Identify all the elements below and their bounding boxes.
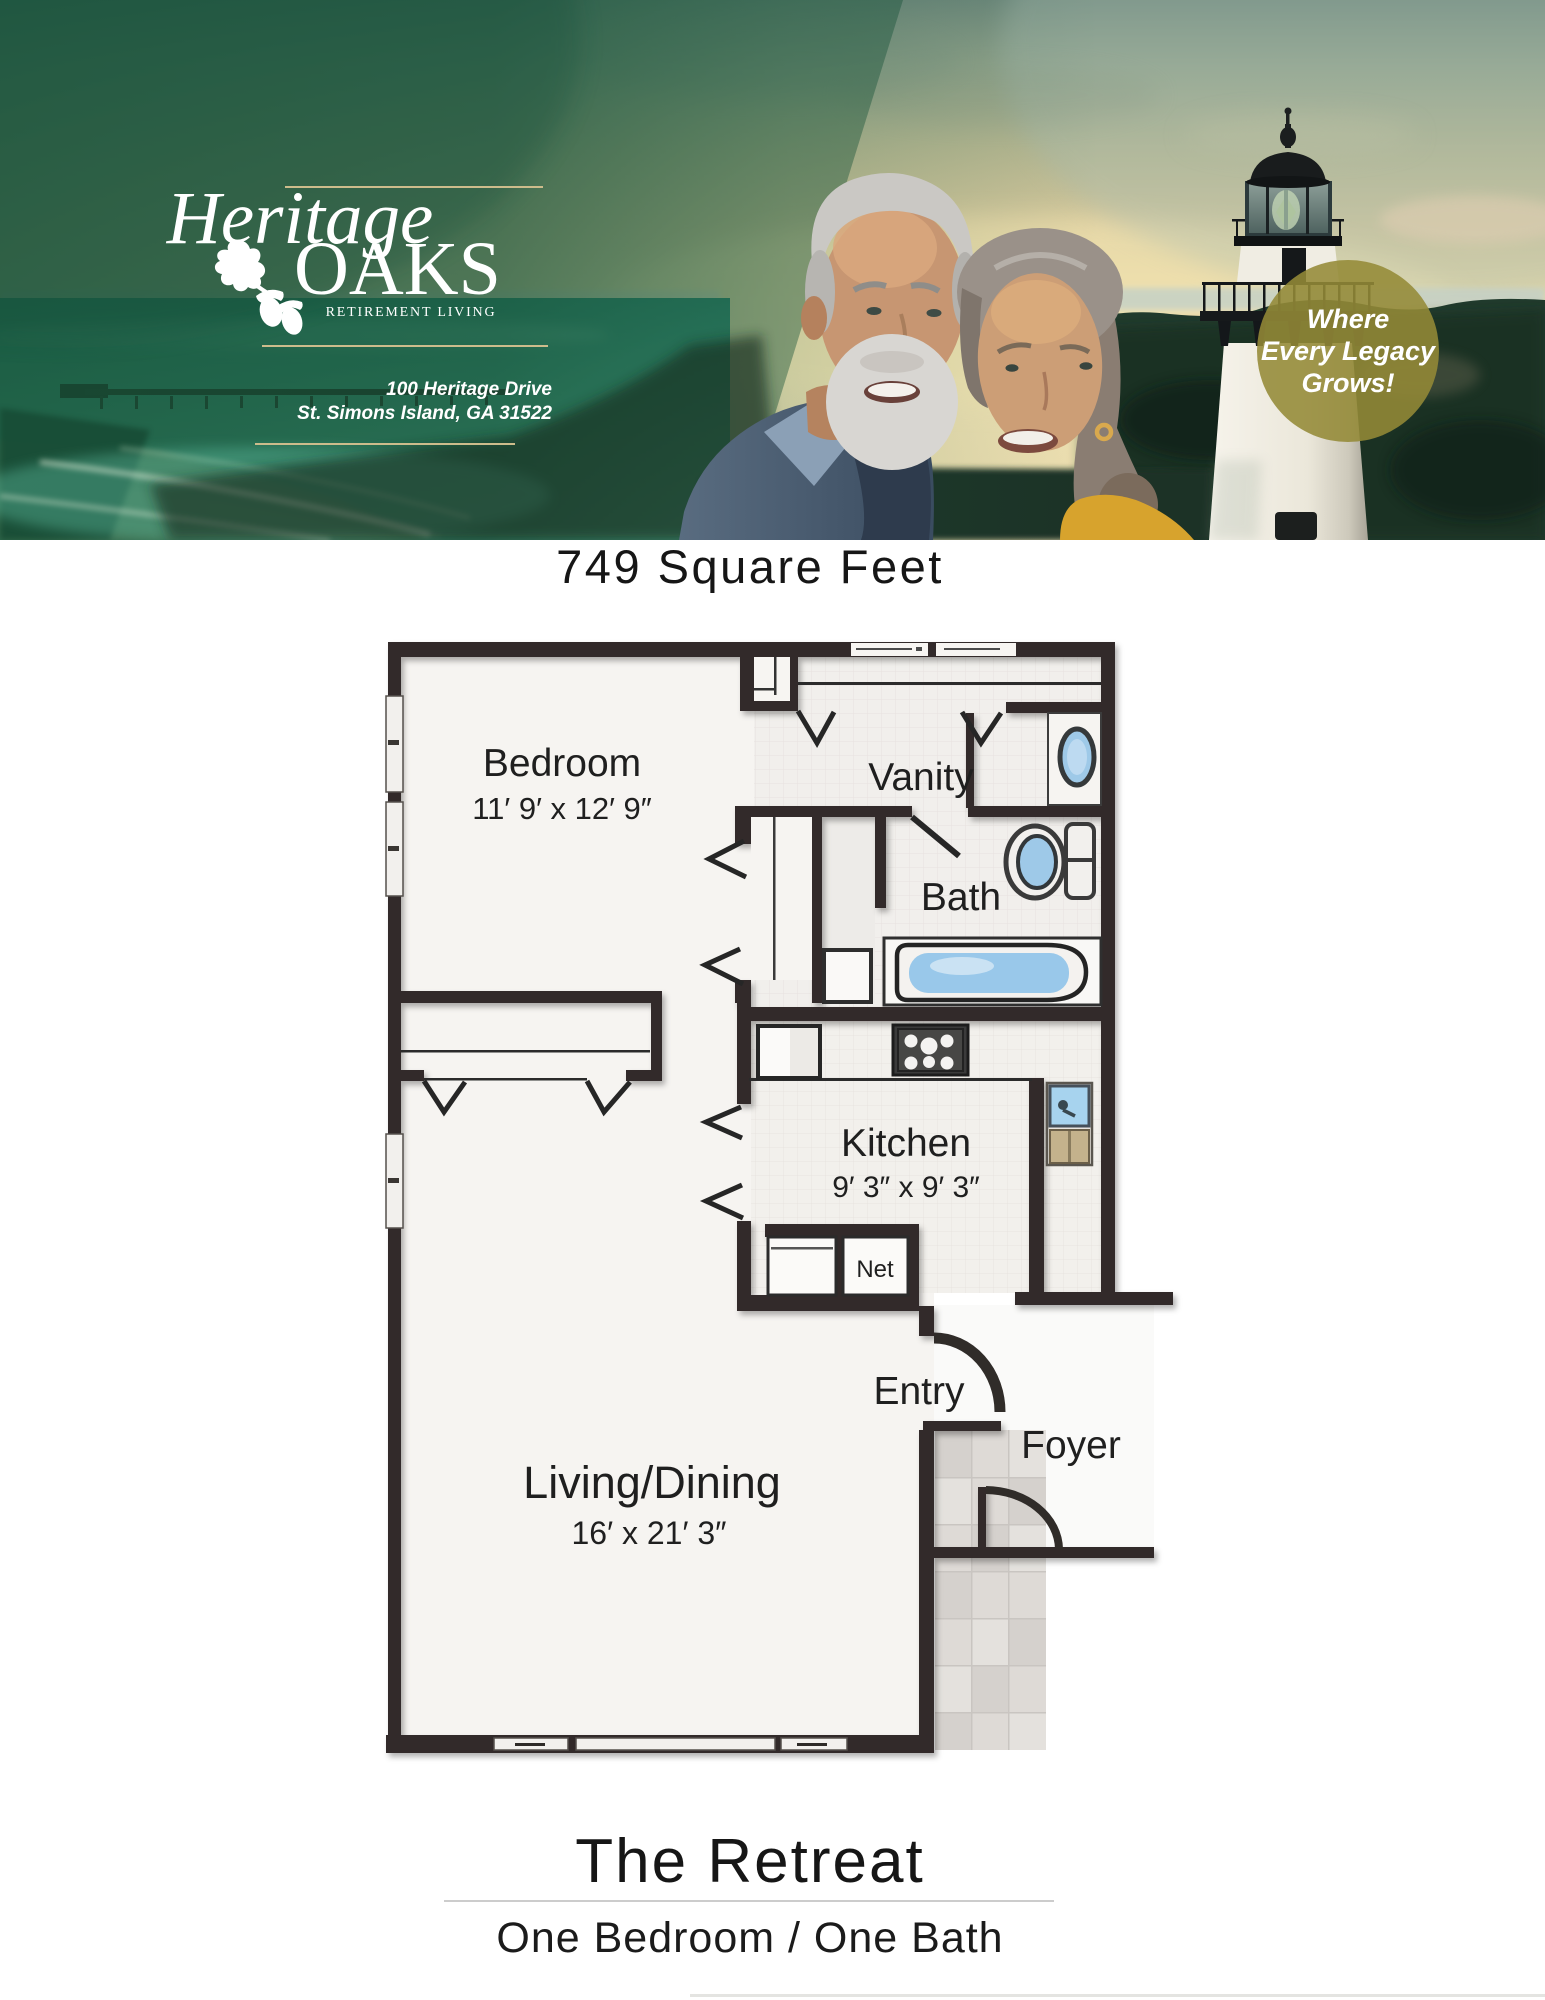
svg-text:Bath: Bath [921,876,1001,919]
svg-text:9′ 3″ x 9′ 3″: 9′ 3″ x 9′ 3″ [832,1171,980,1204]
svg-text:Entry: Entry [873,1370,965,1413]
svg-text:11′ 9′ x 12′ 9″: 11′ 9′ x 12′ 9″ [472,791,652,826]
svg-text:Living/Dining: Living/Dining [523,1457,781,1508]
svg-text:16′ x 21′ 3″: 16′ x 21′ 3″ [572,1515,727,1551]
svg-text:Foyer: Foyer [1021,1424,1121,1467]
svg-text:Bedroom: Bedroom [483,742,641,785]
svg-text:Net: Net [856,1256,894,1283]
svg-text:Vanity: Vanity [868,756,974,799]
svg-text:Kitchen: Kitchen [841,1122,971,1165]
